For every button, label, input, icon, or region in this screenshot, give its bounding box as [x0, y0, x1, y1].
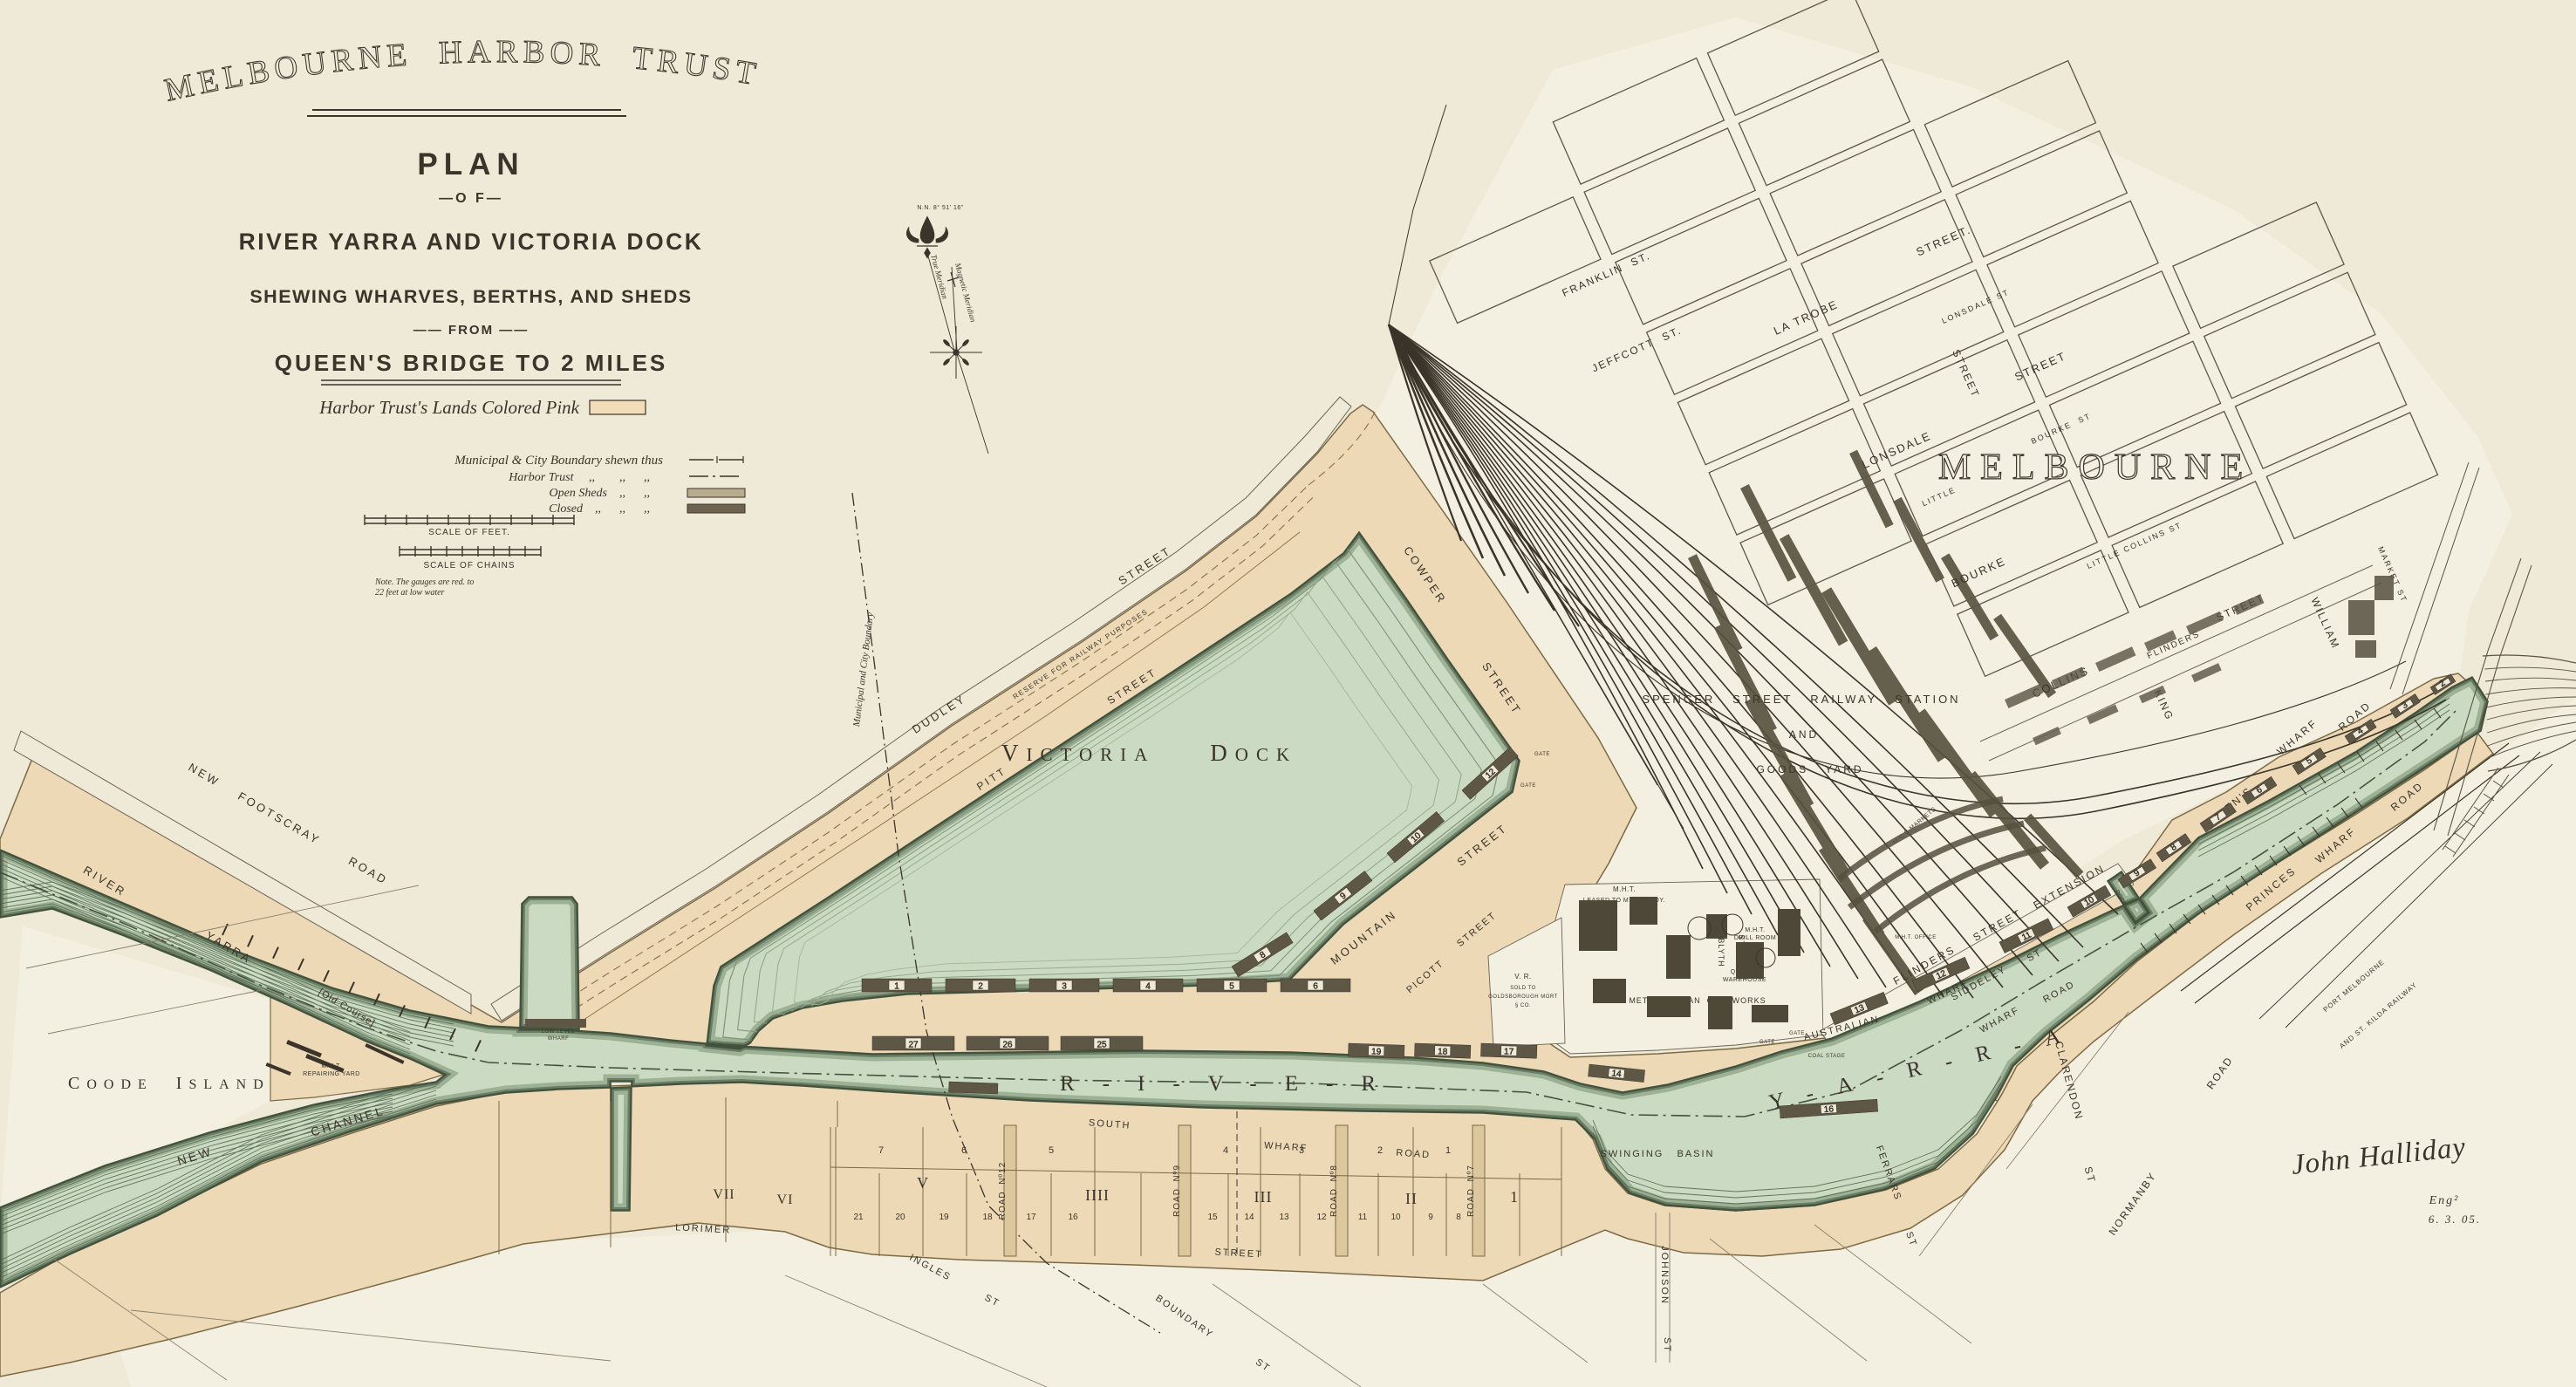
svg-text:VICTORIA DOCK: VICTORIA DOCK — [1001, 740, 1297, 766]
svg-text:13: 13 — [1279, 1213, 1289, 1222]
svg-text:ROAD Nº7: ROAD Nº7 — [1466, 1165, 1476, 1217]
svg-text:1: 1 — [1510, 1188, 1519, 1206]
svg-text:II: II — [1405, 1190, 1418, 1207]
svg-text:27: 27 — [908, 1041, 919, 1050]
svg-text:ROAD Nº12: ROAD Nº12 — [998, 1162, 1008, 1220]
svg-text:15: 15 — [1207, 1213, 1218, 1222]
svg-text:Municipal & City Boundary shew: Municipal & City Boundary shewn thus — [454, 454, 663, 468]
svg-text:M.H.T.: M.H.T. — [1613, 885, 1636, 893]
svg-text:V: V — [917, 1174, 929, 1192]
svg-text:GATE: GATE — [1759, 1040, 1775, 1045]
svg-text:V. R.: V. R. — [1514, 973, 1532, 980]
svg-text:2: 2 — [1377, 1145, 1383, 1156]
svg-text:7: 7 — [878, 1145, 884, 1156]
svg-text:3: 3 — [1299, 1145, 1304, 1156]
svg-text:Harbor Trust's Lands Colored P: Harbor Trust's Lands Colored Pink — [318, 397, 579, 418]
svg-text:26: 26 — [1002, 1041, 1013, 1050]
svg-text:19: 19 — [1371, 1047, 1382, 1056]
svg-text:LOW LEVEL: LOW LEVEL — [542, 1029, 576, 1035]
svg-text:16: 16 — [1068, 1213, 1078, 1222]
svg-text:5: 5 — [1229, 982, 1234, 992]
svg-text:IIII: IIII — [1085, 1186, 1110, 1204]
svg-text:SWINGING BASIN: SWINGING BASIN — [1600, 1149, 1714, 1159]
svg-text:10: 10 — [1390, 1213, 1401, 1222]
svg-text:M.H.T.: M.H.T. — [1745, 927, 1765, 933]
svg-text:Harbor Trust ,, ,,: Harbor Trust ,, ,, ,, — [508, 471, 650, 484]
svg-text:17: 17 — [1504, 1047, 1514, 1056]
svg-text:17: 17 — [1026, 1213, 1036, 1222]
svg-text:4: 4 — [1145, 982, 1151, 992]
svg-text:18: 18 — [982, 1213, 993, 1222]
svg-text:GATE: GATE — [1534, 752, 1550, 757]
svg-text:6: 6 — [1313, 982, 1318, 992]
svg-text:—O F—: —O F— — [439, 191, 503, 206]
svg-text:SHEWING WHARVES, BERTHS, AND S: SHEWING WHARVES, BERTHS, AND SHEDS — [249, 286, 692, 307]
svg-text:JOHNSON: JOHNSON — [1659, 1246, 1670, 1305]
svg-text:5: 5 — [1049, 1145, 1054, 1156]
svg-text:SCALE OF CHAINS: SCALE OF CHAINS — [423, 561, 515, 571]
svg-text:ROAD Nº8: ROAD Nº8 — [1329, 1165, 1339, 1217]
svg-text:AND: AND — [1789, 728, 1819, 741]
svg-text:VII: VII — [713, 1187, 735, 1202]
svg-text:4: 4 — [1223, 1145, 1228, 1156]
svg-text:20: 20 — [895, 1213, 905, 1222]
svg-text:M.H.T. OFFICE: M.H.T. OFFICE — [1895, 935, 1937, 940]
svg-text:19: 19 — [939, 1213, 949, 1222]
svg-text:18: 18 — [1438, 1047, 1448, 1056]
svg-text:COODE ISLAND: COODE ISLAND — [68, 1074, 270, 1093]
svg-text:SCALE OF FEET.: SCALE OF FEET. — [428, 528, 509, 537]
svg-text:GATE: GATE — [1520, 783, 1536, 789]
svg-text:1: 1 — [1445, 1145, 1451, 1156]
svg-text:Closed ,, ,, ,,: Closed ,, ,, ,, — [549, 502, 650, 516]
svg-text:SPENCER STREET RAILWAY S: SPENCER STREET RAILWAY STATION — [1642, 693, 1960, 706]
svg-text:25: 25 — [1097, 1041, 1107, 1050]
svg-text:21: 21 — [853, 1213, 864, 1222]
svg-text:PLAN: PLAN — [417, 147, 524, 181]
svg-text:RIVER YARRA AND VICTORIA DOCK: RIVER YARRA AND VICTORIA DOCK — [239, 229, 704, 255]
svg-text:DRILL ROOM: DRILL ROOM — [1734, 935, 1776, 941]
svg-text:14: 14 — [1244, 1213, 1254, 1222]
svg-text:REPAIRING YARD: REPAIRING YARD — [303, 1071, 360, 1077]
svg-text:8: 8 — [1456, 1213, 1461, 1222]
svg-text:ST: ST — [1662, 1337, 1672, 1353]
svg-text:22 feet at low water: 22 feet at low water — [375, 588, 445, 598]
svg-text:2: 2 — [978, 982, 983, 992]
svg-text:GOLDSBOROUGH MORT: GOLDSBOROUGH MORT — [1488, 994, 1558, 1000]
svg-text:COAL STAGE: COAL STAGE — [1808, 1054, 1846, 1059]
svg-text:III: III — [1254, 1188, 1273, 1206]
svg-text:MELBOURNE: MELBOURNE — [1938, 448, 2252, 488]
svg-text:ROAD Nº9: ROAD Nº9 — [1172, 1165, 1182, 1217]
svg-text:11: 11 — [1358, 1213, 1368, 1222]
svg-text:Open Sheds ,, ,,: Open Sheds ,, ,, — [550, 487, 651, 500]
svg-text:16: 16 — [1823, 1104, 1834, 1115]
svg-text:6: 6 — [961, 1145, 967, 1156]
svg-text:SOLD TO: SOLD TO — [1510, 986, 1536, 991]
svg-text:12: 12 — [1316, 1213, 1327, 1222]
svg-text:14: 14 — [1611, 1069, 1623, 1079]
svg-text:—— FROM ——: —— FROM —— — [413, 323, 530, 338]
svg-text:9: 9 — [1428, 1213, 1433, 1222]
svg-text:GATE: GATE — [1789, 1031, 1805, 1036]
svg-text:1: 1 — [894, 982, 899, 992]
svg-text:GOODS YARD: GOODS YARD — [1756, 763, 1863, 775]
svg-text:WHARF: WHARF — [548, 1036, 570, 1042]
svg-text:Note. The gauges are red. to: Note. The gauges are red. to — [374, 577, 474, 587]
svg-text:VI: VI — [777, 1192, 794, 1207]
svg-text:§ CO.: § CO. — [1515, 1003, 1531, 1008]
svg-text:R-I-V-E-R: R-I-V-E-R — [1060, 1072, 1404, 1096]
svg-text:QUEEN'S BRIDGE TO 2 MILES: QUEEN'S BRIDGE TO 2 MILES — [275, 350, 668, 376]
svg-text:3: 3 — [1062, 982, 1067, 992]
svg-text:6. 3. 05.: 6. 3. 05. — [2429, 1213, 2481, 1226]
svg-text:BLYTH: BLYTH — [1717, 938, 1725, 967]
svg-text:N.N. 8° 51’ 16”: N.N. 8° 51’ 16” — [917, 204, 963, 211]
svg-text:Eng²: Eng² — [2429, 1194, 2460, 1207]
